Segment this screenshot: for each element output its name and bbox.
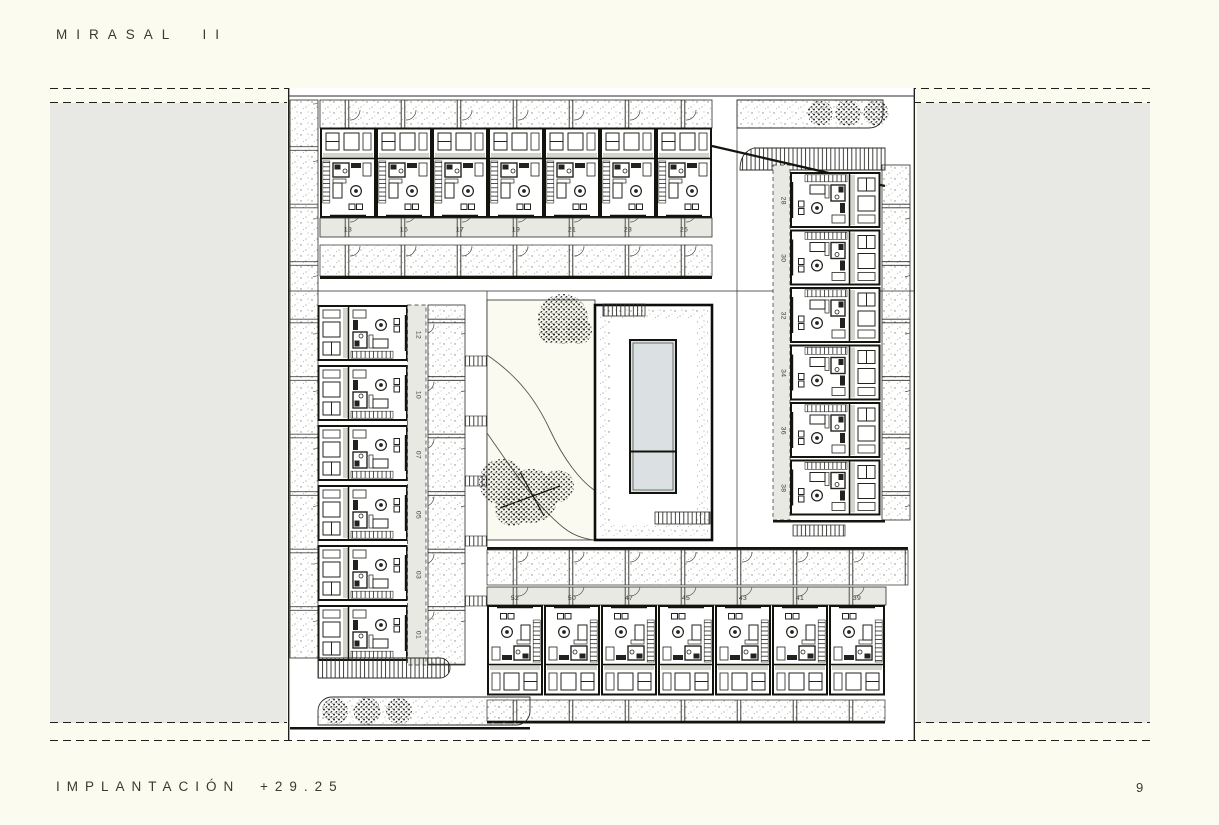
walkway-bridge: [465, 416, 487, 426]
unit-number: 12: [415, 331, 422, 339]
courtyard: [479, 294, 712, 540]
unit-plan-23: [601, 129, 655, 218]
deck-stair-hatch: [655, 512, 710, 524]
unit-number: 32: [780, 312, 787, 320]
right-margin-panel: [917, 103, 1150, 723]
unit-plan-32: [791, 288, 880, 342]
unit-number: 25: [680, 227, 688, 234]
unit-number: 05: [415, 511, 422, 519]
unit-plan-10: [319, 366, 408, 420]
unit-plan-25: [657, 129, 711, 218]
right-number-lane: [773, 165, 790, 520]
unit-plan-05: [319, 486, 408, 540]
unit-plan-03: [319, 546, 408, 600]
unit-number: 45: [682, 595, 690, 602]
unit-plan-36: [791, 403, 880, 457]
unit-plan-47: [602, 606, 656, 695]
tree: [495, 492, 529, 526]
unit-plan-19: [489, 129, 543, 218]
unit-number: 03: [415, 571, 422, 579]
unit-number: 50: [568, 595, 576, 602]
unit-number: 34: [780, 369, 787, 377]
unit-number: 41: [796, 595, 804, 602]
unit-plan-45: [659, 606, 713, 695]
tree: [322, 698, 348, 724]
left-wing-block: 12 10 07 05 03 01: [319, 305, 488, 665]
tree: [808, 101, 833, 126]
right-wing-block: 28 30 32 34 36 38: [773, 165, 910, 536]
unit-plan-15: [377, 129, 431, 218]
unit-number: 47: [625, 595, 633, 602]
left-garden-strip: [290, 100, 318, 658]
top-dashed-line-right: [913, 102, 1150, 103]
tree: [542, 470, 574, 502]
unit-plan-41: [773, 606, 827, 695]
tree: [864, 101, 889, 126]
tree: [835, 100, 861, 126]
unit-plan-07: [319, 426, 408, 480]
bottom-row-block: 52 50 47 45 43 41 39: [487, 587, 886, 724]
tree: [539, 323, 559, 343]
pool-deck: [595, 304, 712, 540]
bottom-dashed-line-right: [913, 722, 1150, 723]
unit-plan-50: [545, 606, 599, 695]
ramp-hatch-strip: [740, 148, 885, 170]
unit-number: 38: [780, 484, 787, 492]
parking-hatch-strip: [318, 658, 450, 678]
unit-number: 36: [780, 427, 787, 435]
unit-number: 10: [415, 391, 422, 399]
left-margin-panel: [50, 103, 287, 723]
unit-plan-34: [791, 346, 880, 400]
site-plan-drawing: 13 15 17 19 21 23 25: [288, 88, 915, 740]
unit-number: 39: [853, 595, 861, 602]
unit-plan-30: [791, 231, 880, 285]
left-number-lane: [408, 305, 427, 665]
unit-number: 17: [456, 227, 464, 234]
swimming-pool: [630, 340, 676, 493]
tree: [386, 698, 412, 724]
unit-number: 15: [400, 227, 408, 234]
unit-number: 30: [780, 254, 787, 262]
unit-plan-01: [319, 606, 408, 660]
tree: [566, 318, 592, 344]
tree: [354, 698, 381, 725]
unit-plan-28: [791, 173, 880, 227]
walkway-bridge: [465, 356, 487, 366]
unit-plan-43: [716, 606, 770, 695]
tree-planter-strip: [318, 697, 530, 725]
unit-number: 23: [624, 227, 632, 234]
stair-hatch: [793, 525, 845, 536]
sheet-subtitle: IMPLANTACIÓN +29.25: [56, 779, 344, 794]
unit-plan-12: [319, 306, 408, 360]
unit-number: 52: [511, 595, 519, 602]
unit-number: 19: [512, 227, 520, 234]
unit-plan-17: [433, 129, 487, 218]
drawing-sheet: MIRASAL II IMPLANTACIÓN +29.25 9: [0, 0, 1219, 825]
unit-number: 21: [568, 227, 576, 234]
unit-number: 07: [415, 451, 422, 459]
sheet-title: MIRASAL II: [56, 27, 228, 42]
unit-plan-13: [321, 129, 375, 218]
unit-plan-38: [791, 461, 880, 515]
unit-number: 01: [415, 631, 422, 639]
unit-number: 43: [739, 595, 747, 602]
unit-number: 13: [344, 227, 352, 234]
walkway-bridge: [465, 596, 487, 606]
unit-plan-39: [830, 606, 884, 695]
bottom-dashed-line: [50, 740, 1150, 741]
bottom-dashed-line-left: [50, 722, 287, 723]
page-number: 9: [1136, 780, 1144, 795]
site-plan: 13 15 17 19 21 23 25: [288, 88, 915, 740]
unit-plan-52: [488, 606, 542, 695]
top-row-block: 13 15 17 19 21 23 25: [320, 100, 712, 279]
unit-plan-21: [545, 129, 599, 218]
top-dashed-line-left: [50, 102, 287, 103]
deck-stair-hatch: [603, 304, 645, 316]
middle-parking-strip: [487, 547, 908, 585]
unit-number: 28: [780, 197, 787, 205]
walkway-bridge: [465, 536, 487, 546]
